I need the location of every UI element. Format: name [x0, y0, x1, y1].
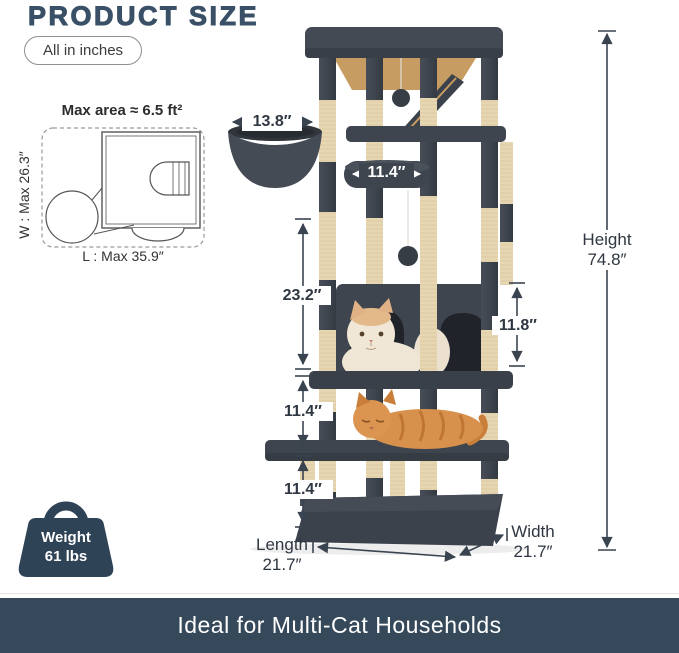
page-title: PRODUCT SIZE [28, 1, 259, 32]
height-value: 74.8″ [574, 250, 640, 270]
bottom-banner: Ideal for Multi-Cat Households [0, 598, 679, 653]
footprint-schematic [42, 128, 204, 247]
basket [228, 123, 322, 188]
perch-width-value: 11.4″ [359, 163, 414, 182]
max-area-label: Max area ≈ 6.5 ft² [36, 102, 208, 119]
weight-value: 61 lbs [20, 547, 112, 566]
condo-height-value: 11.8″ [492, 316, 544, 335]
units-note-pill: All in inches [24, 36, 142, 65]
height-dimension: Height 74.8″ [574, 230, 640, 270]
mid-gap-height-value: 11.4″ [273, 402, 333, 421]
upper-section-height-value: 23.2″ [273, 286, 331, 305]
banner-text: Ideal for Multi-Cat Households [177, 612, 501, 639]
banner-divider [0, 593, 679, 594]
lower-gap-height-value: 11.4″ [273, 480, 333, 499]
weight-badge: Weight 61 lbs [20, 528, 112, 566]
length-dimension: Length 21.7″ [242, 535, 322, 575]
length-label: Length [242, 535, 322, 555]
product-size-infographic: PRODUCT SIZE All in inches Max area ≈ 6.… [0, 0, 679, 653]
width-value: 21.7″ [502, 542, 564, 562]
width-label: Width [502, 522, 564, 542]
height-label: Height [574, 230, 640, 250]
width-dimension: Width 21.7″ [502, 522, 564, 562]
basket-width-value: 13.8″ [242, 112, 302, 131]
footprint-length-label: L : Max 35.9″ [58, 248, 188, 264]
footprint-width-label: W : Max 26.3″ [16, 140, 36, 250]
weight-label: Weight [20, 528, 112, 547]
length-value: 21.7″ [242, 555, 322, 575]
